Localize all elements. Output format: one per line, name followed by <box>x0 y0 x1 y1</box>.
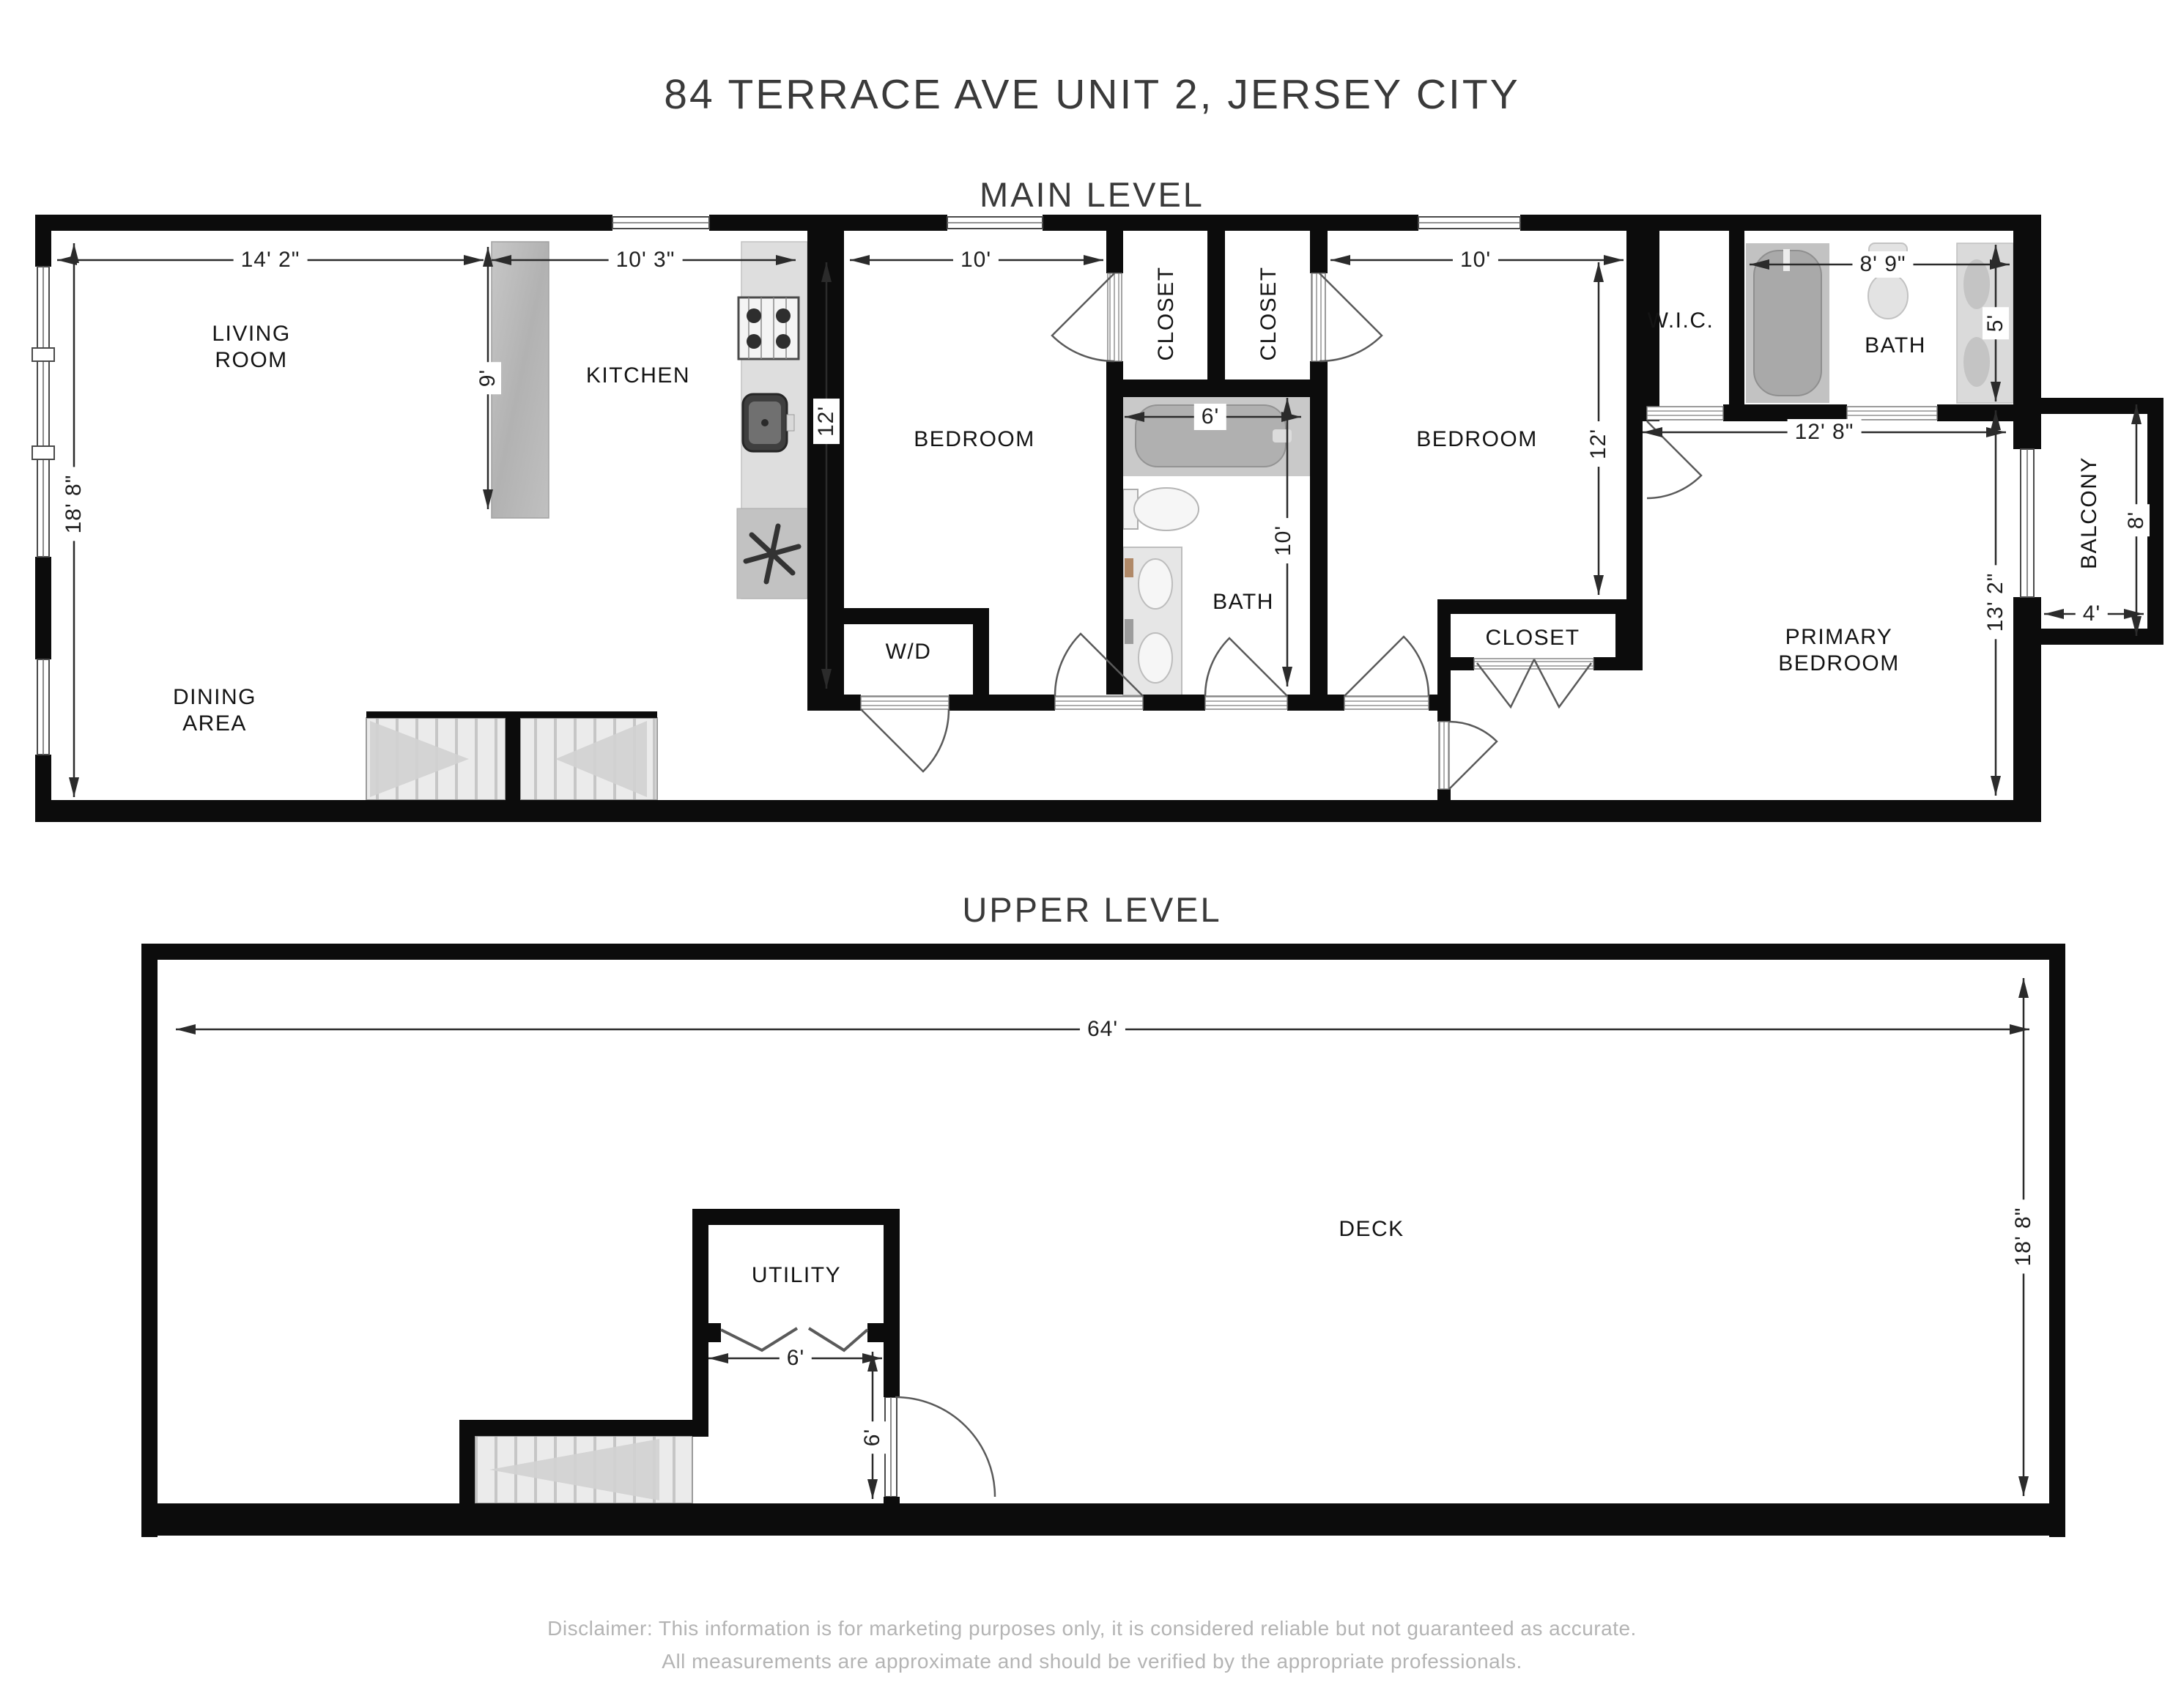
wd-door <box>861 709 949 771</box>
dim-bath-width: 6' <box>1194 404 1226 430</box>
room-label-primary-bedroom: PRIMARY BEDROOM <box>1778 624 1900 677</box>
dim-bedroom2-width: 10' <box>1453 247 1498 273</box>
closet1-door <box>1052 273 1114 361</box>
dim-primary-depth: 13' 2" <box>1983 566 2009 640</box>
dim-primary-bath-depth: 5' <box>1983 307 2009 339</box>
vent-fan-icon <box>737 508 807 599</box>
room-label-hall-closet: CLOSET <box>1485 625 1580 651</box>
toilet-icon <box>1123 488 1199 530</box>
dim-living-width: 14' 2" <box>234 247 308 273</box>
dim-kitchen-width: 10' 3" <box>609 247 683 273</box>
floor-plan-page: 84 TERRACE AVE UNIT 2, JERSEY CITY MAIN … <box>0 0 2184 1688</box>
dim-bedroom1-depth: 12' <box>813 399 840 444</box>
kitchen-counter <box>737 242 807 599</box>
main-level-walls <box>35 215 2163 822</box>
dim-utility-width: 6' <box>780 1345 812 1371</box>
room-label-closet-2: CLOSET <box>1256 266 1282 360</box>
room-label-deck: DECK <box>1339 1216 1404 1243</box>
disclaimer-line-1: Disclaimer: This information is for mark… <box>0 1612 2184 1645</box>
main-stairs <box>366 711 657 800</box>
dim-primary-width: 12' 8" <box>1788 419 1862 445</box>
disclaimer: Disclaimer: This information is for mark… <box>0 1612 2184 1678</box>
vanity-icon <box>1123 547 1182 695</box>
dim-bath-depth: 10' <box>1270 518 1297 563</box>
dim-island-length: 9' <box>475 362 501 394</box>
dim-balcony-depth: 8' <box>2123 504 2150 536</box>
closet2-door <box>1319 273 1382 361</box>
upper-stairs <box>475 1436 692 1503</box>
window-mullion <box>32 446 54 459</box>
room-label-dining-area: DINING AREA <box>173 684 256 737</box>
dim-living-depth: 18' 8" <box>61 467 87 541</box>
room-label-living-room: LIVING ROOM <box>212 321 290 374</box>
dim-deck-depth: 18' 8" <box>2010 1200 2037 1274</box>
room-label-washer-dryer: W/D <box>886 639 932 665</box>
kitchen-sink-icon <box>743 394 794 451</box>
room-label-closet-1: CLOSET <box>1153 266 1180 360</box>
dim-balcony-width: 4' <box>2076 601 2108 627</box>
room-label-kitchen: KITCHEN <box>586 363 690 389</box>
dim-primary-bath-width: 8' 9" <box>1852 251 1913 278</box>
room-label-bath: BATH <box>1213 589 1274 615</box>
dim-deck-width: 64' <box>1080 1016 1125 1043</box>
bath-door <box>1205 638 1287 696</box>
disclaimer-line-2: All measurements are approximate and sho… <box>0 1645 2184 1678</box>
dim-utility-passage-depth: 6' <box>859 1421 886 1454</box>
dim-bedroom1-width: 10' <box>953 247 999 273</box>
bedroom2-door <box>1344 637 1429 696</box>
room-label-bedroom-1: BEDROOM <box>914 426 1035 453</box>
hall-door <box>1449 722 1497 789</box>
stove-icon <box>739 297 799 359</box>
room-label-bedroom-2: BEDROOM <box>1416 426 1538 453</box>
deck-door-swing <box>895 1397 995 1497</box>
window-mullion <box>32 348 54 361</box>
room-label-primary-bath: BATH <box>1865 333 1926 359</box>
dim-bedroom2-depth: 12' <box>1585 421 1612 467</box>
room-label-utility: UTILITY <box>752 1262 841 1289</box>
room-label-wic: W.I.C. <box>1648 308 1714 334</box>
room-label-balcony: BALCONY <box>2076 456 2103 569</box>
